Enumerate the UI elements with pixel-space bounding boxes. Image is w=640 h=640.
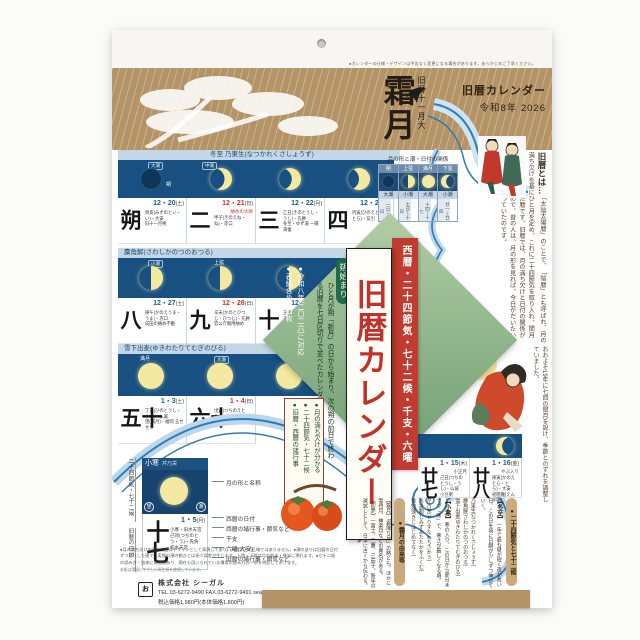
- kyureki-day: 十: [257, 309, 278, 328]
- sample-sekki: 小寒: [145, 460, 159, 467]
- weekday: (月): [314, 201, 322, 207]
- kyureki-day: 八: [119, 309, 140, 328]
- event-note: 旧十一月朔: [145, 221, 184, 227]
- top-disclaimer: ●カレンダーの仕様・デザインは予告なく変更になる場合があります。あらかじめご了承…: [300, 61, 536, 67]
- kyureki-day: 朔: [119, 209, 140, 228]
- brand-block: 旧暦カレンダー 令和8年 2026: [434, 82, 546, 114]
- annotation-seireki-events: 西暦の諸行事・節気など: [212, 524, 290, 533]
- brand-title: 旧暦カレンダー: [434, 82, 546, 98]
- day-cell: 1・15(木) 小正月 廿七 己丑(つちのとうし・うし)・仏滅小豆粥: [418, 458, 470, 498]
- moon-half: [139, 266, 163, 290]
- red-subtitle-banner: 西暦・二十四節気・七十二候・千支・六曜: [392, 238, 418, 470]
- weekday: (日): [245, 301, 253, 307]
- pine-tree-illustration: [118, 70, 368, 148]
- eto-note: 甲子(きのえね・ね)・赤口: [214, 215, 253, 226]
- yurai-text: 【霜月】「霜降り月」の略とも。ほかに雪待月、神楽月などの異名がある。: [376, 498, 392, 590]
- event-note: 小豆粥: [440, 492, 467, 498]
- gregorian-date: 1・5: [181, 515, 197, 524]
- brand-year: 令和8年 2026: [434, 100, 546, 114]
- weekday: (土): [176, 301, 184, 307]
- annotation-date: 西暦の日付: [212, 514, 255, 523]
- kou-item: 麋角解(さわしかのつのおつる): [460, 498, 468, 590]
- tide-name: 大潮: [379, 191, 398, 199]
- sample-line: 小寒・旧水天宮: [170, 527, 205, 533]
- company-name: 株式会社 シーガル: [158, 578, 358, 588]
- corner-mark-right: 潮: [196, 502, 206, 512]
- weekday: (土): [176, 399, 184, 405]
- day-cell-sunday: 12・21(日) 納めの大師 二 甲子(きのえね・ね)・赤口: [187, 198, 256, 244]
- eto-note: 辛未(かのとひつじ・ひつじ)・先勝: [214, 310, 253, 321]
- ukiyoe-figures-illustration: [478, 136, 526, 198]
- annotation-eto: 干支: [212, 534, 238, 543]
- moon-phase-label: 満月: [140, 356, 150, 362]
- moon-half: [402, 175, 415, 188]
- gregorian-date: 1・15: [440, 460, 459, 467]
- sekki-kou-list: 乃東生(なつかれくさしょうず) 麋角解(さわしかのつのおつる) 雪下出麦(ゆきわ…: [453, 498, 476, 590]
- kyureki-day: 二: [188, 209, 209, 228]
- moon-full: [207, 363, 233, 389]
- sekki-entry-head: 【小寒】: [444, 498, 450, 522]
- sekki-kou-list: 芹乃栄(せりすなわちさかう) 水泉動(しみずあたたかをふくむ) 雉始雊(きじはじ…: [408, 498, 431, 590]
- sekki-entry: 【冬至】一年で最も昼が短く夜が長い日。この日を境に日脚が少しずつ伸びていく。: [478, 498, 503, 590]
- kyureki-day: 十六: [188, 407, 230, 443]
- seagull-logo-icon: [404, 82, 430, 106]
- calendar-sheet: ●カレンダーの仕様・デザインは予告なく変更になる場合があります。あらかじめご了承…: [112, 30, 552, 608]
- annotation-moon-name: 月の形と名称: [212, 478, 261, 487]
- event-note: 官公庁御用納め: [214, 321, 253, 327]
- moon-new: [382, 175, 395, 188]
- sample-line: 己卯(つちのとう・う)・先負: [170, 533, 205, 545]
- corner-mark-left: 望: [144, 502, 154, 512]
- sekki-column-section: ●二十四節気と七十二候 【冬至】一年で最も昼が短く夜が長い日。この日を境に日脚が…: [348, 498, 520, 590]
- eto-note: 乙丑(きのとうし・うし)・先勝: [283, 210, 322, 221]
- day-cell: 1・16(金) やぶ入り 廿八 庚寅(かのえとら・とら)・大安初閻魔(えんま詣): [470, 458, 522, 498]
- row4-cells: 1・15(木) 小正月 廿七 己丑(つちのとうし・うし)・仏滅小豆粥 1・16(…: [418, 458, 522, 498]
- white-title-banner: 旧暦カレンダー: [346, 248, 392, 540]
- about-kyureki-text2: おおよそ19年に七回の閏月を設け、季節とのずれを調整していました。: [524, 346, 548, 504]
- sample-moon-box: 望 潮: [142, 470, 208, 514]
- moon-table-col: 上弦 小潮 七日〜十日: [399, 165, 419, 221]
- bullet-year: ●令和八年(二〇二六)に対応: [294, 266, 306, 386]
- moon-table-col: 満月 大潮 十四〜十七: [419, 165, 439, 221]
- sample-header: 小寒芹乃栄: [142, 458, 208, 470]
- kyureki-day: 四: [326, 209, 347, 228]
- yurai-pill: ●霜月の由来等: [394, 498, 405, 586]
- event-note: 成田の納め不動: [145, 321, 184, 327]
- event-note: 冬至・ゆず湯 一陽来復: [283, 221, 322, 232]
- weekday: (土): [176, 201, 184, 207]
- weekday: (日): [245, 399, 253, 405]
- disclaimer-line: の読み方・由来には諸説あり、現在も用いられている慣用の読み方の一例を明記しており…: [120, 560, 346, 566]
- side-label-sekki: 二十四節気・七十二候: [126, 458, 136, 522]
- misc-column-text: 【初夢】一富士、二鷹、三茄子。新年の運試しとして、日本に古くから伝わる。: [360, 498, 376, 590]
- moon-new: [140, 168, 162, 190]
- recycled-paper-note: 本紙は環境にやさしい再生紙を使用しています。: [120, 568, 346, 574]
- moon-phase-label: 朔: [166, 182, 171, 188]
- moon-crescent: [210, 168, 232, 190]
- gregorian-date: 12・20: [153, 200, 176, 207]
- hanging-hole: [317, 39, 326, 48]
- sekki-entry: 【小寒】寒の入り。この日から節分までが「寒」で、寒さが厳しくなる頃。: [434, 498, 451, 590]
- row1-sekki-label: 冬至 乃東生(なつかれくさしょうず): [118, 150, 400, 160]
- gregorian-date: 12・27: [153, 300, 176, 307]
- row1-moon-band: 大潮 中潮 朔: [118, 160, 394, 198]
- bullet-sheets: ●表紙含め十四枚: [282, 266, 294, 386]
- product-photo: { "header": { "note": "●カレンダーの仕様・デザインは予告…: [0, 0, 640, 640]
- day-cell: 12・20(土) 朔 癸亥(みずのとい・い)・大安旧十一月朔: [118, 198, 187, 244]
- tide-days: 七日〜十日: [399, 199, 411, 221]
- sekki-pill: ●二十四節気と七十二候: [506, 498, 517, 586]
- about-lead: 旧暦とは…: [537, 152, 547, 195]
- kyureki-day: 九: [188, 309, 209, 328]
- row4-moon-band: [418, 434, 522, 458]
- gregorian-date: 1・4: [230, 398, 245, 405]
- kou-item: 乃東生(なつかれくさしょうず): [468, 498, 476, 590]
- day-cell: 1・3(土) 十五 丁丑(ひのとうし・うし)・仏滅望(満月)・福岡 玉せせり: [118, 396, 187, 444]
- sample-kou: 芹乃栄: [162, 461, 177, 467]
- kyureki-calendar-title: 旧暦カレンダー: [348, 255, 391, 531]
- kou-item: 芹乃栄(せりすなわちさかう): [424, 498, 432, 590]
- moon-half: [208, 266, 232, 290]
- eto-note: 庚寅(かのえとら・とら)・大安: [492, 475, 519, 492]
- gregorian-date: 12・28: [222, 300, 245, 307]
- weekday: (日): [245, 201, 253, 207]
- kyureki-day: 三: [257, 209, 278, 228]
- sekki-entry-head: 【冬至】: [496, 498, 502, 522]
- tide-name: 大潮: [419, 191, 438, 199]
- diamond-bullets: ●令和八年(二〇二六)に対応 ●表紙含め十四枚: [280, 266, 306, 386]
- day-cell-sunday: 12・28(日) 九 辛未(かのとひつじ・ひつじ)・先勝官公庁御用納め: [187, 298, 256, 344]
- gregorian-date: 1・3: [161, 398, 176, 405]
- kyureki-day: 廿七: [419, 467, 436, 497]
- eto-note: 癸亥(みずのとい・い)・大安: [145, 210, 184, 221]
- moon-crescent: [348, 168, 370, 190]
- tide-name: 小潮: [399, 191, 418, 199]
- moon-crescent: [279, 168, 301, 190]
- gregorian-date: 1・16: [492, 460, 511, 467]
- print-mark-icon: お: [138, 582, 153, 597]
- moon-waning-crescent: [496, 437, 514, 455]
- kou-item: 水泉動(しみずあたたかをふくむ): [416, 498, 424, 590]
- weekday: (月): [197, 518, 205, 524]
- kou-item: 雉始雊(きじはじめてなく): [408, 498, 416, 590]
- moon-full: [160, 477, 188, 505]
- gregorian-date: 12・21: [222, 200, 245, 207]
- gregorian-date: 12・22: [291, 200, 314, 207]
- eto-note: 庚午(かのえうま・うま)・赤口: [145, 310, 184, 321]
- weekday: (木): [459, 461, 467, 467]
- phase-name: 上弦: [399, 165, 418, 173]
- tide-days: 十四〜十七: [419, 199, 431, 221]
- day-cell-sunday: 1・4(日) 十六 戊寅(つちのえとら・とら)・大安官公庁御用始め: [187, 396, 256, 444]
- row3-cells: 1・3(土) 十五 丁丑(ひのとうし・うし)・仏滅望(満月)・福岡 玉せせり 1…: [118, 396, 256, 444]
- eto-note: 己丑(つちのとうし・うし)・仏滅: [440, 475, 467, 492]
- footer-disclaimers: ●月の満ち欠けの形や位置はデザインとして表現してあり、天文学上の正確ではありませ…: [120, 547, 346, 574]
- phase-name: 朔: [379, 165, 398, 173]
- bottom-board-edge: [262, 590, 530, 608]
- day-cell: 12・27(土) 八 庚午(かのえうま・うま)・赤口成田の納め不動: [118, 298, 187, 344]
- weekday: (金): [511, 461, 519, 467]
- moon-full: [138, 363, 164, 389]
- kyureki-day: 廿八: [471, 467, 488, 497]
- kyureki-day: 十五: [119, 407, 161, 443]
- disclaimer-line: ずつ送りした値で、実際の潮の動きとは多少誤差が生じます。上弦・下弦は月の前半・後…: [120, 553, 346, 559]
- moon-full: [422, 175, 435, 188]
- phase-name: 満月: [419, 165, 438, 173]
- row1-cells: 12・20(土) 朔 癸亥(みずのとい・い)・大安旧十一月朔 12・21(日) …: [118, 198, 394, 244]
- kou-item: 雪下出麦(ゆきわたりてむぎのびる): [453, 498, 461, 590]
- day-cell: 12・22(月) 三 乙丑(きのとうし・うし)・先勝冬至・ゆず湯 一陽来復: [256, 198, 325, 244]
